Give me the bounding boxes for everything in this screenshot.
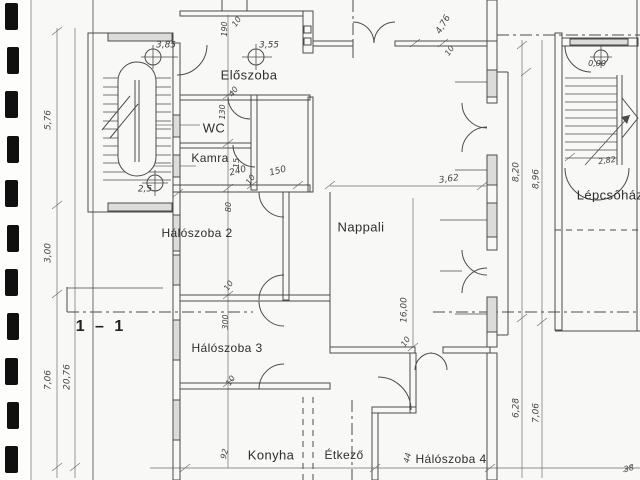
dim-20-76: 20,76 <box>64 364 73 390</box>
dim-8-96: 8,96 <box>533 169 542 189</box>
dim-3-00: 3,00 <box>45 243 54 263</box>
dim-7-06-left: 7,06 <box>45 370 54 390</box>
dim-4-76: 4,76 <box>435 14 453 36</box>
level-eloszoba: 3,55 <box>259 42 279 51</box>
room-label-eloszoba: Előszoba <box>221 69 278 82</box>
section-label: 1 – 1 <box>76 319 127 335</box>
dim-8-20: 8,20 <box>513 162 522 182</box>
dim-10-h3: 10 <box>225 375 237 388</box>
room-label-haloszoba-4: Hálószoba 4 <box>415 453 486 465</box>
room-label-konyha: Konyha <box>248 449 295 462</box>
dim-80: 80 <box>225 202 233 212</box>
dim-7-06-right: 7,06 <box>533 403 542 423</box>
room-label-haloszoba-3: Hálószoba 3 <box>191 342 262 354</box>
room-label-nappali: Nappali <box>338 221 385 234</box>
dim-10-h2: 10 <box>223 280 235 293</box>
dim-5-76: 5,76 <box>45 110 54 130</box>
dim-190: 190 <box>221 21 229 36</box>
dim-3-62: 3,62 <box>438 174 459 186</box>
room-label-wc: WC <box>203 122 225 135</box>
scanned-floorplan-page: ElőszobaWCKamraHálószoba 2NappaliHálószo… <box>0 0 640 480</box>
dim-92: 92 <box>220 448 230 460</box>
dim-38: 38 <box>623 464 635 474</box>
dim-130: 130 <box>219 104 227 119</box>
dim-40: 40 <box>228 86 240 99</box>
level-stair-left-bottom: 2,5 <box>138 186 152 195</box>
dim-16-00: 16,00 <box>401 297 410 323</box>
dim-10-kamra: 10 <box>245 174 257 187</box>
dim-44: 44 <box>403 452 413 464</box>
dim-150: 150 <box>269 165 288 178</box>
dim-10-nappali-top: 10 <box>444 45 456 58</box>
dim-10-etkezo: 10 <box>400 336 412 349</box>
dim-300-h3: 300 <box>222 314 230 329</box>
dim-10-top: 10 <box>231 16 243 29</box>
room-label-haloszoba-2: Hálószoba 2 <box>161 227 232 239</box>
level-stair-left-top: 3,85 <box>156 42 176 51</box>
dim-6-28: 6,28 <box>513 398 522 418</box>
room-label-etkezo: Étkező <box>324 449 363 461</box>
dim-240: 240 <box>229 165 248 178</box>
room-label-kamra: Kamra <box>191 152 228 164</box>
room-label-lepcsohaz: Lépcsőház <box>577 189 640 202</box>
text-labels-layer: ElőszobaWCKamraHálószoba 2NappaliHálószo… <box>0 0 640 480</box>
dim-2-82: 2,82 <box>598 156 617 166</box>
level-lepcsohaz: 0,00 <box>588 60 606 68</box>
